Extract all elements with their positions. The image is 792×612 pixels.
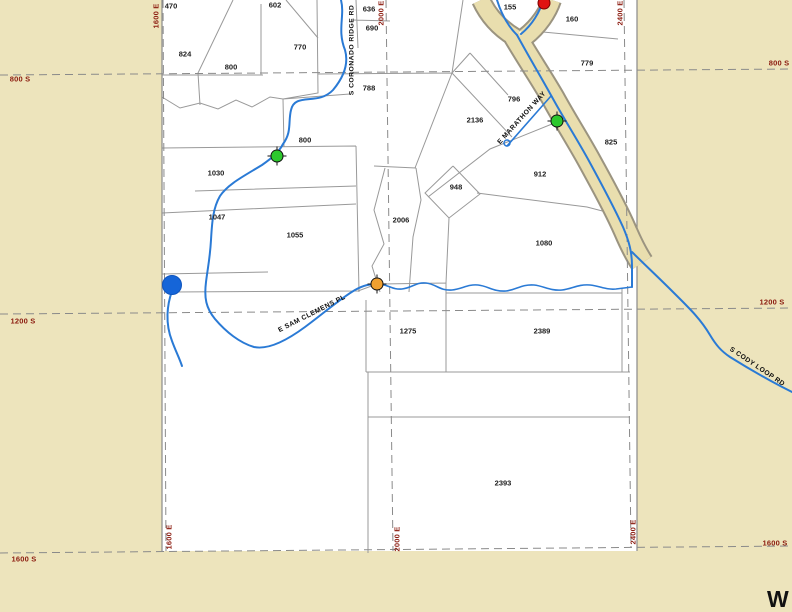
parcel-area — [162, 0, 637, 551]
parcel-number-label: 770 — [294, 43, 307, 52]
grid-coordinate-label: 800 S — [10, 75, 31, 84]
parcel-number-label: 1047 — [209, 213, 226, 222]
blue-dot-marker[interactable] — [162, 275, 182, 295]
grid-coordinate-label: 2400 E — [629, 520, 638, 545]
grid-coordinate-label: 2400 E — [616, 1, 625, 26]
grid-coordinate-label: 1200 S — [760, 298, 785, 307]
parcel-number-label: 948 — [450, 183, 463, 192]
parcel-number-label: 2389 — [534, 327, 551, 336]
grid-coordinate-label: 1600 E — [165, 525, 174, 550]
parcel-number-label: 1275 — [400, 327, 417, 336]
grid-coordinate-label: 1600 S — [12, 555, 37, 564]
parcel-number-label: 1080 — [536, 239, 553, 248]
parcel-number-label: 912 — [534, 170, 547, 179]
grid-coordinate-label: 1600 E — [152, 4, 161, 29]
parcel-number-label: 602 — [269, 1, 282, 10]
parcel-number-label: 796 — [508, 95, 521, 104]
parcel-number-label: 788 — [363, 84, 376, 93]
grid-coordinate-label: 800 S — [769, 59, 790, 68]
parcel-number-label: 2393 — [495, 479, 512, 488]
parcel-number-label: 2006 — [393, 216, 410, 225]
green-crosshair-marker[interactable] — [268, 147, 287, 166]
road-name-label: S CORONADO RIDGE RD — [349, 5, 356, 96]
map-canvas[interactable]: 4706026366907708248007881551607797962136… — [0, 0, 792, 612]
parcel-number-label: 779 — [581, 59, 594, 68]
grid-coordinate-label: 2000 E — [393, 527, 402, 552]
parcel-number-label: 470 — [165, 2, 178, 11]
parcel-number-label: 155 — [504, 3, 517, 12]
grid-coordinate-label: 1200 S — [11, 317, 36, 326]
compass-west-label: W — [767, 586, 789, 612]
map-geometry — [0, 0, 792, 612]
grid-coordinate-label: 2000 E — [377, 1, 386, 26]
parcel-number-label: 800 — [299, 136, 312, 145]
green-crosshair-marker[interactable] — [548, 112, 567, 131]
grid-coordinate-label: 1600 S — [763, 539, 788, 548]
parcel-number-label: 800 — [225, 63, 238, 72]
parcel-number-label: 2136 — [467, 116, 484, 125]
parcel-number-label: 824 — [179, 50, 192, 59]
orange-crosshair-marker[interactable] — [368, 275, 387, 294]
parcel-number-label: 825 — [605, 138, 618, 147]
parcel-number-label: 1030 — [208, 169, 225, 178]
parcel-number-label: 636 — [363, 5, 376, 14]
parcel-number-label: 160 — [566, 15, 579, 24]
parcel-number-label: 1055 — [287, 231, 304, 240]
